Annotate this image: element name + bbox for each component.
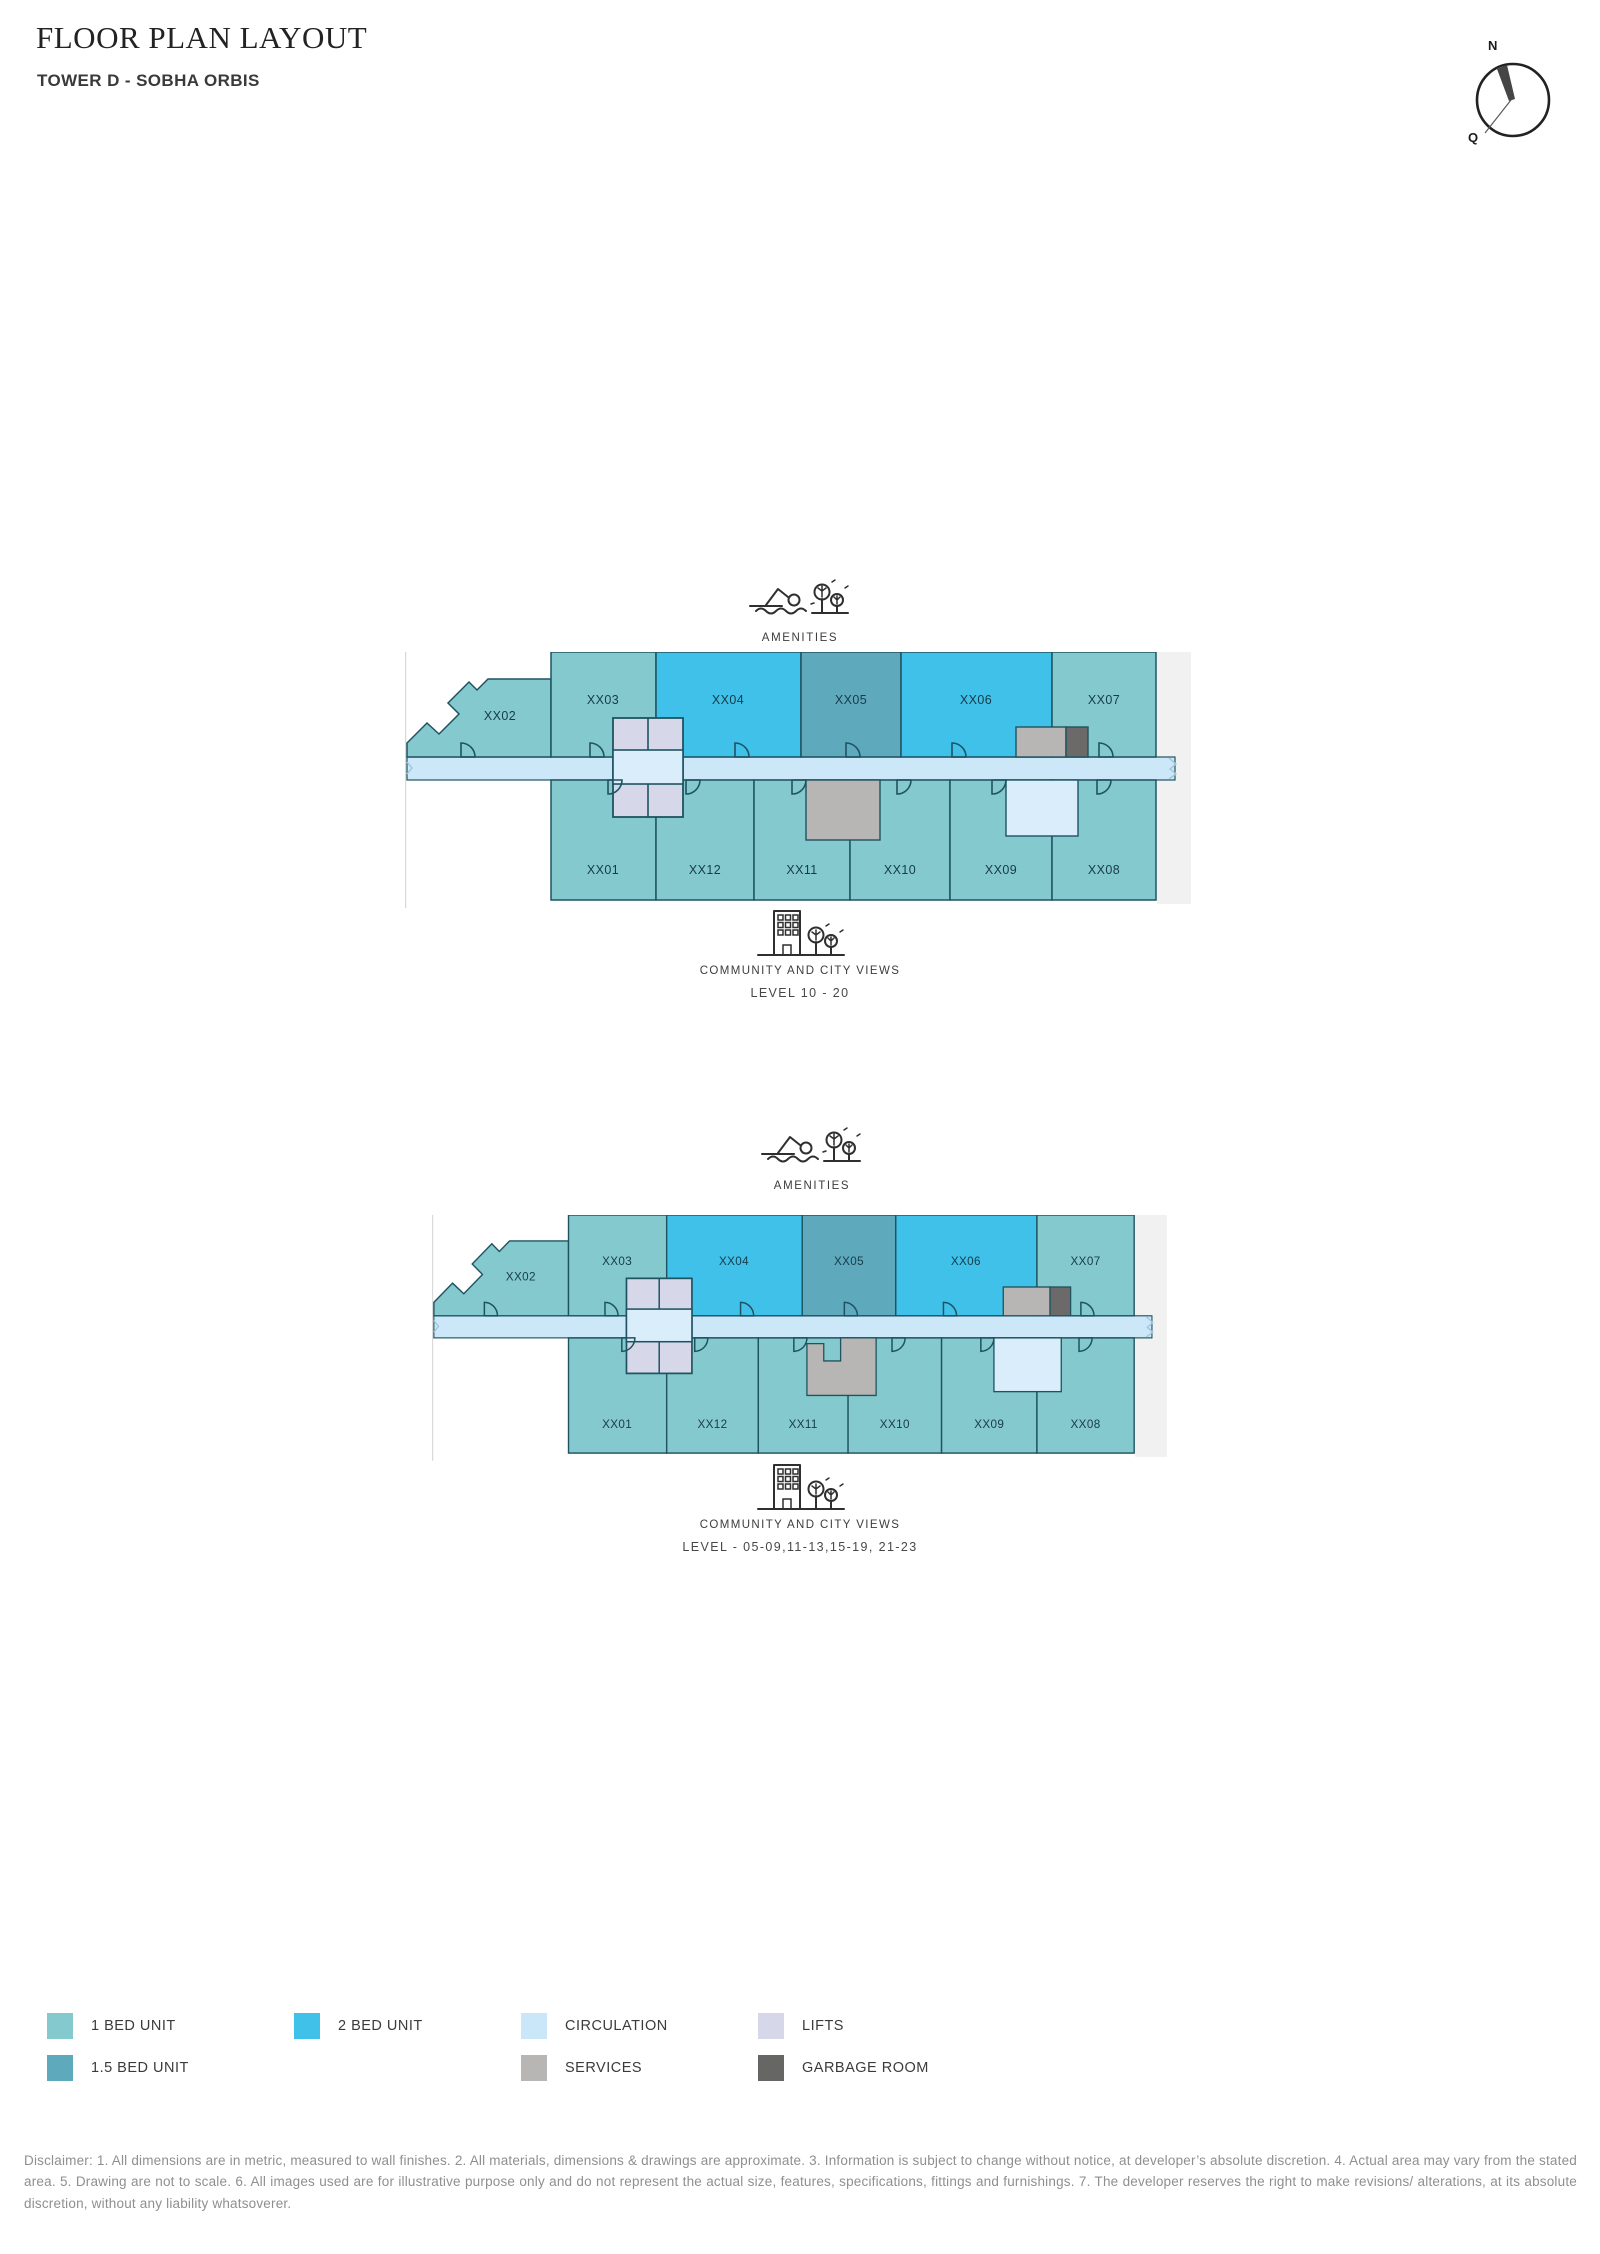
legend-swatch xyxy=(758,2013,784,2039)
compass: N Q xyxy=(1460,38,1570,150)
unit-label: XX01 xyxy=(602,1418,632,1431)
legend-swatch xyxy=(47,2013,73,2039)
unit-label: XX09 xyxy=(974,1418,1004,1431)
services-room xyxy=(1003,1287,1050,1316)
garbage-room xyxy=(1066,727,1088,757)
unit-label: XX04 xyxy=(719,1254,749,1267)
legend-swatch xyxy=(521,2055,547,2081)
unit-label: XX06 xyxy=(960,693,992,707)
unit-label: XX08 xyxy=(1071,1418,1101,1431)
unit-label: XX10 xyxy=(880,1418,910,1431)
page-title: FLOOR PLAN LAYOUT xyxy=(36,20,367,56)
amenities-block-1: AMENITIES xyxy=(700,576,900,644)
views-label: COMMUNITY AND CITY VIEWS xyxy=(630,1519,970,1531)
amenities-block-2: AMENITIES xyxy=(712,1124,912,1192)
amenities-label: AMENITIES xyxy=(712,1180,912,1192)
legend-label: 1 BED UNIT xyxy=(91,2018,176,2034)
amenities-swimmer-icon xyxy=(760,1124,864,1176)
services-room xyxy=(1016,727,1066,757)
amenities-label: AMENITIES xyxy=(700,632,900,644)
legend-item-garbage-room: GARBAGE ROOM xyxy=(758,2054,929,2081)
unit-shape xyxy=(434,1241,569,1316)
amenities-swimmer-icon xyxy=(748,576,852,628)
level-label: LEVEL - 05-09,11-13,15-19, 21-23 xyxy=(630,1540,970,1554)
unit-label: XX02 xyxy=(484,709,516,723)
legend-swatch xyxy=(758,2055,784,2081)
legend-item-circulation: CIRCULATION xyxy=(521,2012,668,2039)
legend-item-1-bed: 1 BED UNIT xyxy=(47,2012,176,2039)
legend-item-lifts: LIFTS xyxy=(758,2012,844,2039)
unit-label: XX11 xyxy=(789,1418,818,1431)
unit-label: XX02 xyxy=(506,1270,536,1283)
unit-label: XX07 xyxy=(1088,693,1120,707)
unit-label: XX01 xyxy=(587,863,619,877)
unit-label: XX12 xyxy=(689,863,721,877)
services-room xyxy=(807,1338,876,1396)
legend-label: LIFTS xyxy=(802,2018,844,2034)
community-building-icon xyxy=(750,1462,850,1514)
unit-label: XX12 xyxy=(697,1418,727,1431)
community-views-block-1: COMMUNITY AND CITY VIEWS LEVEL 10 - 20 xyxy=(630,908,970,1000)
unit-label: XX04 xyxy=(712,693,744,707)
legend-label: GARBAGE ROOM xyxy=(802,2060,929,2076)
unit-label: XX11 xyxy=(786,863,817,877)
services-room xyxy=(806,780,880,840)
legend-item-services: SERVICES xyxy=(521,2054,642,2081)
unit-shape xyxy=(407,679,551,757)
views-label: COMMUNITY AND CITY VIEWS xyxy=(630,965,970,977)
unit-label: XX07 xyxy=(1071,1254,1101,1267)
community-views-block-2: COMMUNITY AND CITY VIEWS LEVEL - 05-09,1… xyxy=(630,1462,970,1554)
unit-label: XX09 xyxy=(985,863,1017,877)
disclaimer-text: Disclaimer: 1. All dimensions are in met… xyxy=(24,2150,1577,2214)
unit-label: XX03 xyxy=(602,1254,632,1267)
compass-north-label: N xyxy=(1488,38,1497,53)
legend-label: 2 BED UNIT xyxy=(338,2018,423,2034)
floor-plan-level-10-20: XX02 XX03 XX04 XX05 XX06 XX07 XX01 XX12 … xyxy=(405,652,1195,910)
legend-swatch xyxy=(294,2013,320,2039)
unit-label: XX03 xyxy=(587,693,619,707)
legend-item-1-5-bed: 1.5 BED UNIT xyxy=(47,2054,189,2081)
legend-swatch xyxy=(47,2055,73,2081)
unit-label: XX05 xyxy=(835,693,867,707)
community-building-icon xyxy=(750,908,850,960)
compass-south-label: Q xyxy=(1468,130,1478,145)
floor-plan-page: FLOOR PLAN LAYOUT TOWER D - SOBHA ORBIS … xyxy=(0,0,1600,2254)
legend-item-2-bed: 2 BED UNIT xyxy=(294,2012,423,2039)
legend-swatch xyxy=(521,2013,547,2039)
garbage-room xyxy=(1050,1287,1071,1316)
page-subtitle: TOWER D - SOBHA ORBIS xyxy=(37,71,260,91)
legend-label: CIRCULATION xyxy=(565,2018,668,2034)
level-label: LEVEL 10 - 20 xyxy=(630,986,970,1000)
unit-label: XX05 xyxy=(834,1254,864,1267)
legend-label: 1.5 BED UNIT xyxy=(91,2060,189,2076)
floor-plan-level-05-23: XX02 XX03 XX04 XX05 XX06 XX07 XX01 XX12 … xyxy=(432,1215,1171,1463)
unit-label: XX08 xyxy=(1088,863,1120,877)
legend-label: SERVICES xyxy=(565,2060,642,2076)
unit-label: XX06 xyxy=(951,1254,981,1267)
circulation-block xyxy=(1006,780,1078,836)
unit-label: XX10 xyxy=(884,863,916,877)
circulation-block xyxy=(994,1338,1061,1392)
